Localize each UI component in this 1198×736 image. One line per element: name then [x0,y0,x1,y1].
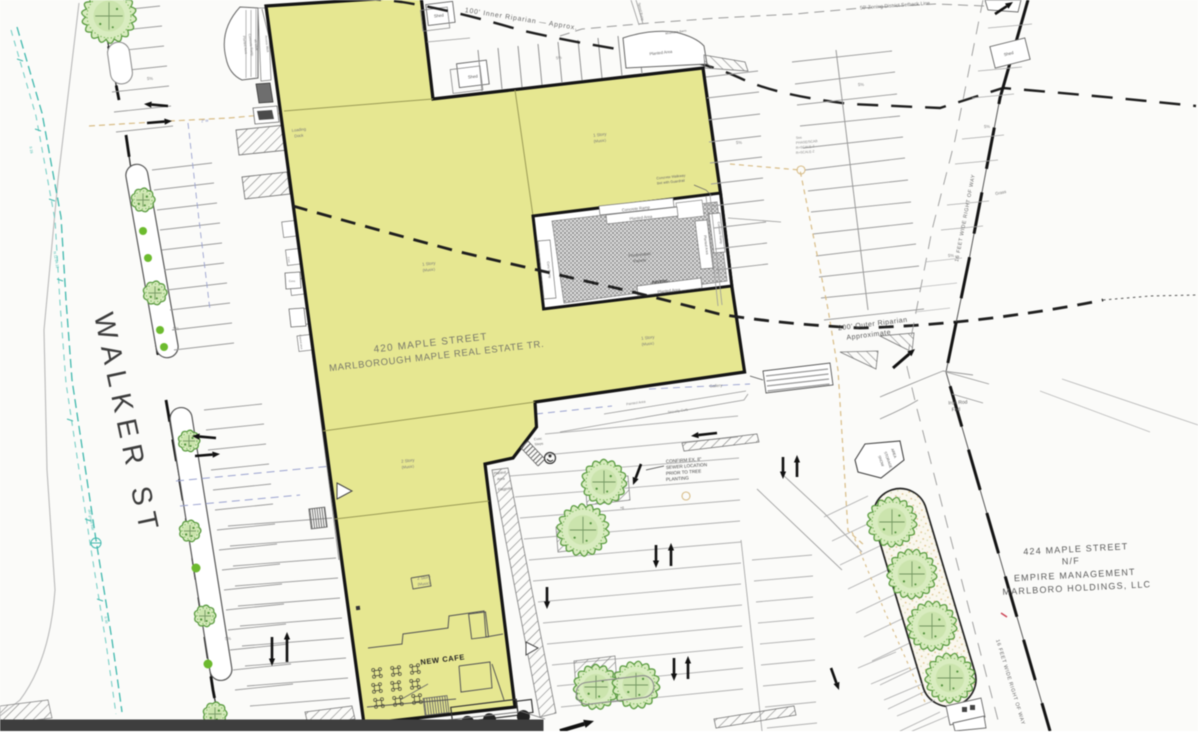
svg-text:Dock: Dock [294,133,304,139]
svg-text:5%: 5% [736,140,742,145]
svg-text:Area: Area [497,477,505,482]
svg-text:See: See [796,135,802,140]
svg-text:5%: 5% [984,124,990,129]
svg-text:5%: 5% [173,326,179,331]
svg-text:Fnd: Fnd [951,407,960,413]
svg-text:5%: 5% [948,253,954,258]
svg-text:+6: +6 [620,506,624,510]
svg-text:Conc: Conc [534,437,543,442]
svg-text:Iron Rod: Iron Rod [948,399,968,406]
svg-text:5%: 5% [225,636,231,641]
svg-text:Conc: Conc [289,279,296,283]
svg-text:Gallery: Gallery [709,383,722,389]
svg-text:2" W: 2" W [201,119,209,124]
svg-text:N/F: N/F [1062,556,1081,567]
svg-text:5%: 5% [147,76,153,81]
svg-text:5%: 5% [556,55,563,61]
svg-text:5%: 5% [858,82,864,87]
